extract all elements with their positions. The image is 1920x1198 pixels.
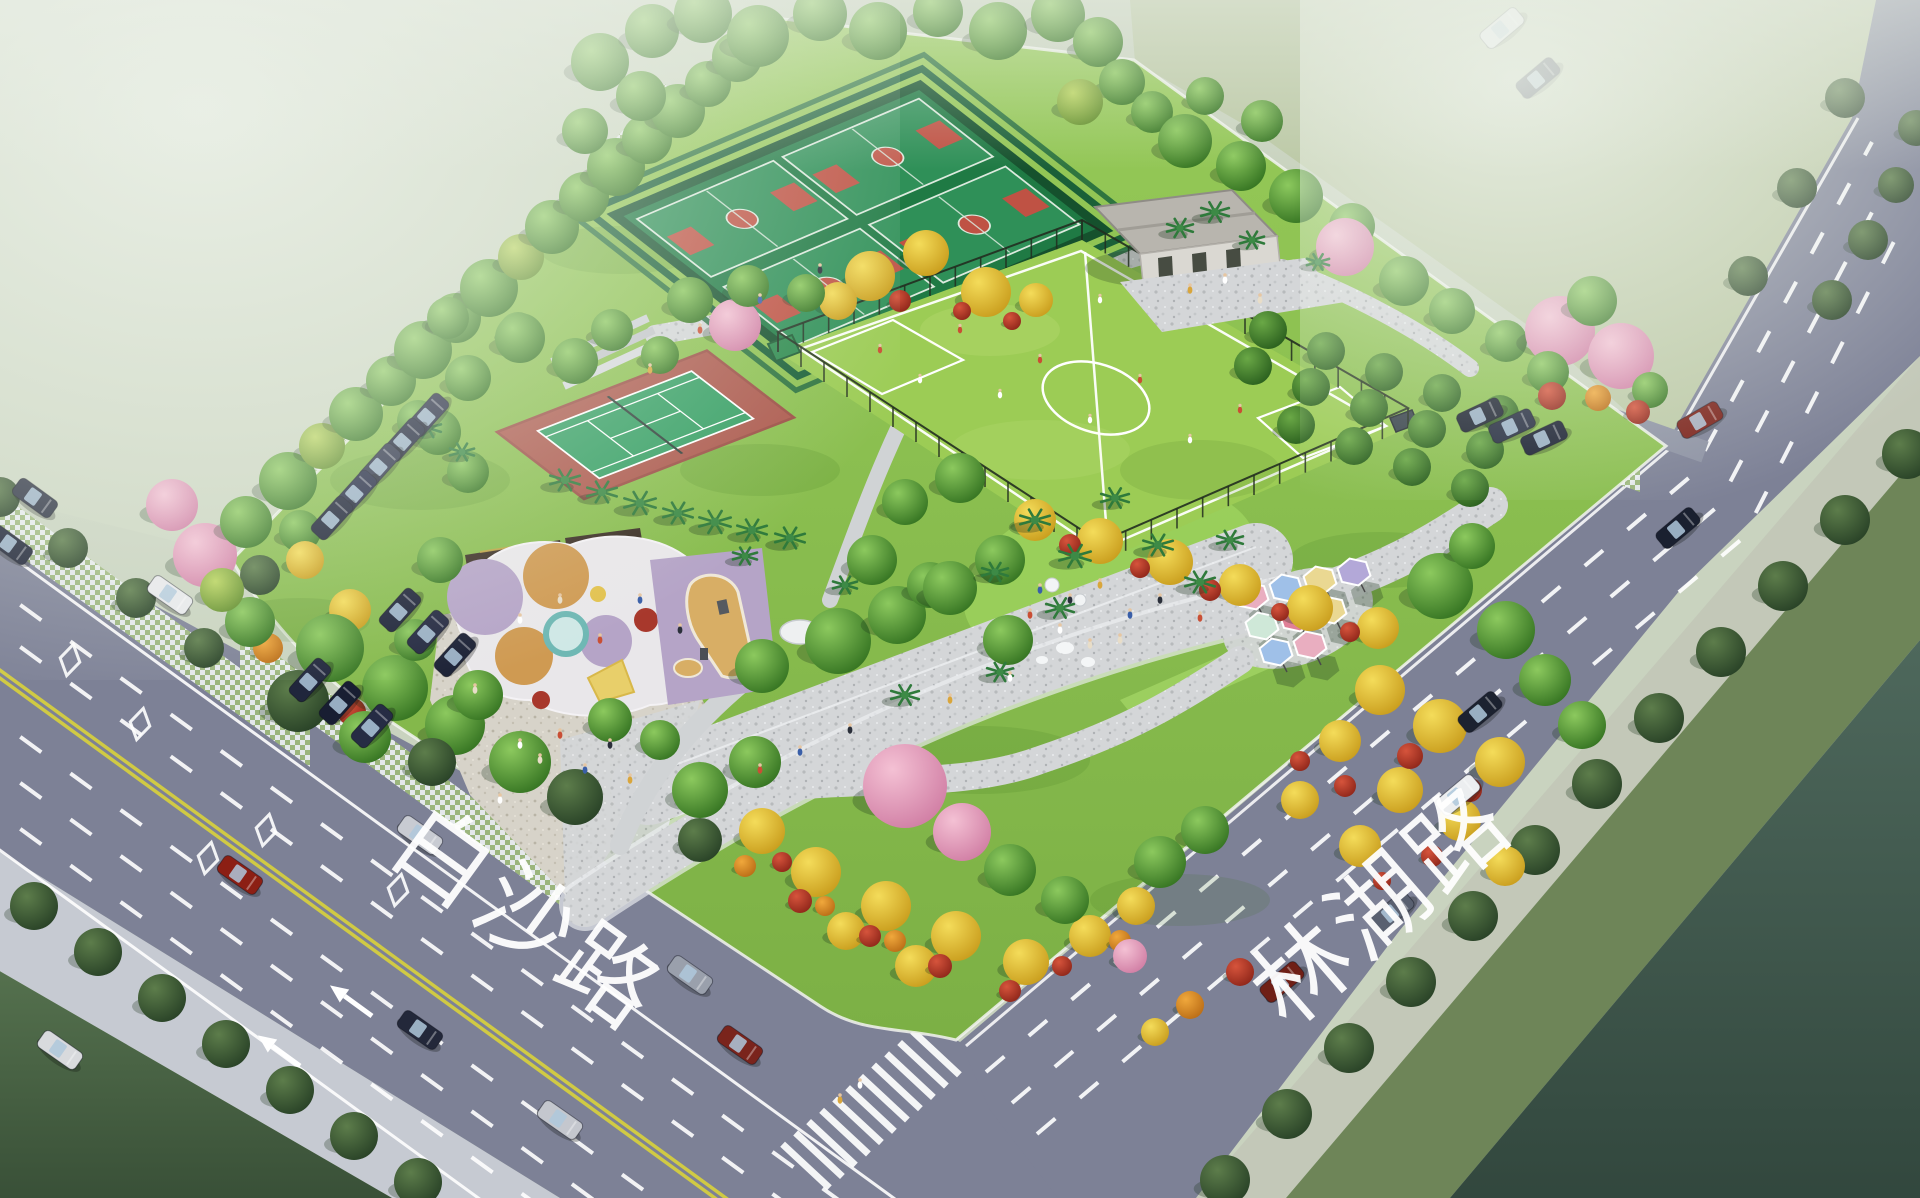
pink-flowering-tree [933, 803, 991, 861]
tree [1449, 523, 1495, 569]
tree [588, 698, 632, 742]
player-body [1138, 377, 1142, 384]
street-tree [74, 928, 122, 976]
person [798, 745, 803, 756]
person [538, 753, 543, 764]
person-head [1098, 578, 1102, 582]
yellow-flowering-tree [739, 808, 785, 854]
street-tree [1262, 1089, 1312, 1139]
player-body [1098, 297, 1102, 304]
person-body [838, 1096, 843, 1104]
person-body [558, 731, 563, 739]
person-head [538, 753, 542, 757]
player-head [1038, 354, 1041, 357]
palm-crown [1211, 208, 1219, 216]
person-body [1098, 581, 1103, 589]
yellow-flowering-tree [1413, 699, 1467, 753]
person [1128, 608, 1133, 619]
person-head [838, 1093, 842, 1097]
person [1158, 593, 1163, 604]
person-head [1128, 608, 1132, 612]
tree [1558, 701, 1606, 749]
person-body [798, 748, 803, 756]
person [1038, 583, 1043, 594]
red-flower-shrub [1340, 622, 1360, 642]
top-atmosphere-fade [0, 0, 1920, 170]
person-body [1028, 611, 1033, 619]
person-body [1223, 276, 1228, 284]
red-flower-shrub [1003, 312, 1021, 330]
palm-crown [901, 691, 909, 699]
tree [1477, 601, 1535, 659]
person-body [1198, 614, 1203, 622]
tree [923, 561, 977, 615]
person-head [1008, 671, 1012, 675]
tree [672, 762, 728, 818]
person [1068, 593, 1073, 604]
red-flower-shrub [999, 980, 1021, 1002]
person-body [1188, 286, 1193, 294]
building-door2 [1192, 252, 1207, 274]
orange-flower-shrub [734, 855, 756, 877]
person [758, 763, 763, 774]
yellow-flowering-tree [1141, 1018, 1169, 1046]
palm-crown [1196, 578, 1204, 586]
red-flower-shrub [1334, 775, 1356, 797]
person [1188, 283, 1193, 294]
person-body [583, 766, 588, 774]
person-head [948, 693, 952, 697]
palm-crown [1154, 541, 1162, 549]
person-head [848, 723, 852, 727]
street-tree [202, 1020, 250, 1068]
pink-flowering-tree [1113, 939, 1147, 973]
yellow-flowering-tree [1355, 665, 1405, 715]
player-head [1138, 374, 1141, 377]
pink-flowering-tree [863, 744, 947, 828]
player-head [1098, 294, 1101, 297]
tree [1134, 836, 1186, 888]
soccer-player [918, 374, 922, 384]
tree [984, 844, 1036, 896]
red-flower-shrub [772, 852, 792, 872]
tree [983, 615, 1033, 665]
person [1098, 578, 1103, 589]
player-body [918, 377, 922, 384]
red-flower-shrub [859, 925, 881, 947]
yellow-flowering-tree [1077, 518, 1123, 564]
player-head [998, 389, 1001, 392]
person [628, 773, 633, 784]
person-body [608, 741, 613, 749]
person-head [498, 793, 502, 797]
soccer-player [1238, 404, 1242, 414]
palm-crown [1176, 224, 1183, 231]
tree [1519, 654, 1571, 706]
orange-flower-shrub [884, 930, 906, 952]
player-body [1038, 357, 1042, 364]
person-body [848, 726, 853, 734]
person [948, 693, 953, 704]
orange-flower-shrub [1176, 991, 1204, 1019]
tree [935, 453, 985, 503]
park-rendering-canvas: 白沙路 林湖路 [0, 0, 1920, 1198]
person [498, 793, 503, 804]
palm-crown [1031, 516, 1039, 524]
red-flower-shrub [928, 954, 952, 978]
person-head [583, 763, 587, 767]
person-body [948, 696, 953, 704]
person [608, 738, 613, 749]
player-body [1188, 437, 1192, 444]
street-tree [1696, 627, 1746, 677]
orange-flower-shrub [815, 896, 835, 916]
yellow-flowering-tree [1117, 887, 1155, 925]
soccer-player [1188, 434, 1192, 444]
person-head [1198, 611, 1202, 615]
player-body [1088, 417, 1092, 424]
person-head [758, 763, 762, 767]
person [558, 728, 563, 739]
red-flower-shrub [1397, 743, 1423, 769]
street-tree [408, 738, 456, 786]
red-flower-shrub [1130, 558, 1150, 578]
palm-crown [996, 668, 1003, 675]
person-body [1068, 596, 1073, 604]
soccer-player [1088, 414, 1092, 424]
player-head [1238, 404, 1241, 407]
person-head [1038, 583, 1042, 587]
yellow-flowering-tree [1281, 781, 1319, 819]
person-head [858, 1078, 862, 1082]
person-body [1158, 596, 1163, 604]
person-head [1068, 593, 1072, 597]
red-flower-shrub [1271, 603, 1289, 621]
person [1258, 293, 1263, 304]
yellow-flowering-tree [931, 911, 981, 961]
player-head [1088, 414, 1091, 417]
person-body [758, 766, 763, 774]
red-flower-shrub [953, 302, 971, 320]
person-body [1118, 636, 1123, 644]
yellow-flowering-tree [1287, 585, 1333, 631]
street-tree [1572, 759, 1622, 809]
player-body [998, 392, 1002, 399]
person-head [1088, 638, 1092, 642]
street-tree [1324, 1023, 1374, 1073]
palm-crown [1249, 237, 1256, 244]
street-tree [1758, 561, 1808, 611]
street-tree [10, 882, 58, 930]
person-head [473, 683, 477, 687]
red-flower-shrub [1290, 751, 1310, 771]
yellow-flowering-tree [1219, 564, 1261, 606]
person-body [518, 741, 523, 749]
person-head [628, 773, 632, 777]
palm-crown [991, 568, 998, 575]
street-tree [266, 1066, 314, 1114]
person-head [1028, 608, 1032, 612]
person [1118, 633, 1123, 644]
person [583, 763, 588, 774]
palm-crown [1056, 604, 1064, 612]
person-body [1058, 626, 1063, 634]
street-tree [547, 769, 603, 825]
person [1058, 623, 1063, 634]
person [848, 723, 853, 734]
yellow-flowering-tree [1357, 607, 1399, 649]
palm-crown [1111, 494, 1119, 502]
person-body [1008, 674, 1013, 682]
yellow-flowering-tree [903, 230, 949, 276]
yellow-flowering-tree [1475, 737, 1525, 787]
person-head [1058, 623, 1062, 627]
person [1028, 608, 1033, 619]
soccer-player [1138, 374, 1142, 384]
tree [640, 720, 680, 760]
yellow-flowering-tree [1003, 939, 1049, 985]
person [473, 683, 478, 694]
person-body [1258, 296, 1263, 304]
person [1198, 611, 1203, 622]
person-head [1188, 283, 1192, 287]
person [858, 1078, 863, 1089]
soccer-player [958, 324, 962, 334]
street-tree [1634, 693, 1684, 743]
red-flower-shrub [788, 889, 812, 913]
person-head [608, 738, 612, 742]
person-head [1118, 633, 1122, 637]
yellow-flowering-tree [1019, 283, 1053, 317]
person-head [518, 738, 522, 742]
person-head [798, 745, 802, 749]
player-head [1188, 434, 1191, 437]
person [838, 1093, 843, 1104]
person [1223, 273, 1228, 284]
player-head [918, 374, 921, 377]
grass-shade [1090, 874, 1270, 926]
person-head [558, 728, 562, 732]
yellow-flowering-tree [1319, 720, 1361, 762]
park-aerial-rendering: 白沙路 林湖路 [0, 0, 1920, 1198]
tree [1041, 876, 1089, 924]
tree [1181, 806, 1229, 854]
street-tree [138, 974, 186, 1022]
person-body [1088, 641, 1093, 649]
person-body [1038, 586, 1043, 594]
soccer-player [1038, 354, 1042, 364]
person [1008, 671, 1013, 682]
building-door [1158, 256, 1173, 278]
street-tree [678, 818, 722, 862]
tree [1249, 311, 1287, 349]
soccer-player [1098, 294, 1102, 304]
soccer-player [998, 389, 1002, 399]
street-tree [330, 1112, 378, 1160]
player-body [1238, 407, 1242, 414]
yellow-flowering-tree [827, 912, 865, 950]
yellow-flowering-tree [861, 881, 911, 931]
person-head [1258, 293, 1262, 297]
person [518, 738, 523, 749]
palm-crown [1071, 552, 1080, 561]
person-body [628, 776, 633, 784]
playground-dome-red2 [532, 691, 550, 709]
person-head [1158, 593, 1162, 597]
red-flower-shrub [1052, 956, 1072, 976]
player-head [958, 324, 961, 327]
person-head [1223, 273, 1227, 277]
person [1088, 638, 1093, 649]
street-tree [1820, 495, 1870, 545]
palm-crown [1226, 536, 1233, 543]
person-body [538, 756, 543, 764]
tree [729, 736, 781, 788]
tree [1234, 347, 1272, 385]
person-body [858, 1081, 863, 1089]
person-body [1128, 611, 1133, 619]
person-body [473, 686, 478, 694]
person-body [498, 796, 503, 804]
player-body [958, 327, 962, 334]
